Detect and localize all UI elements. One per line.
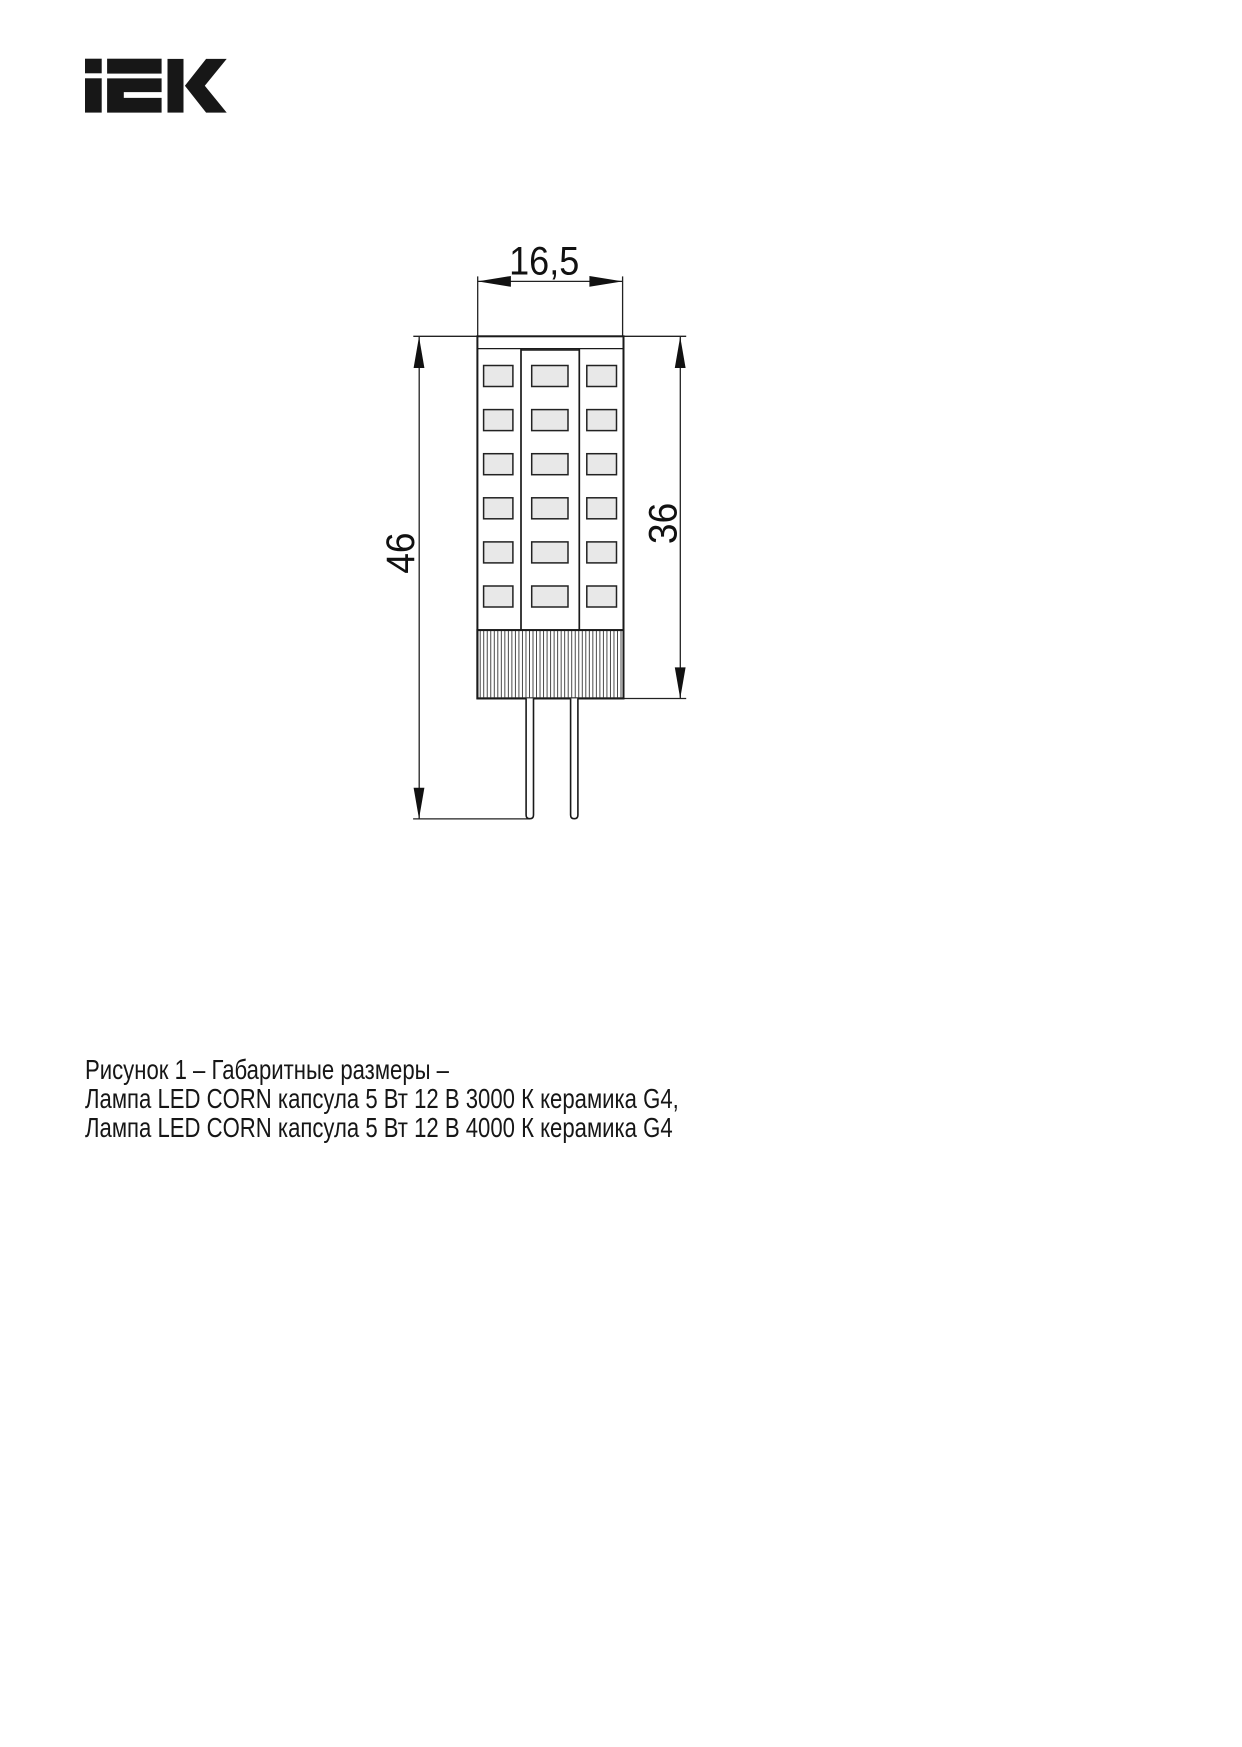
svg-text:36: 36 [641, 503, 686, 544]
svg-text:16,5: 16,5 [509, 240, 579, 284]
svg-text:46: 46 [379, 532, 424, 573]
